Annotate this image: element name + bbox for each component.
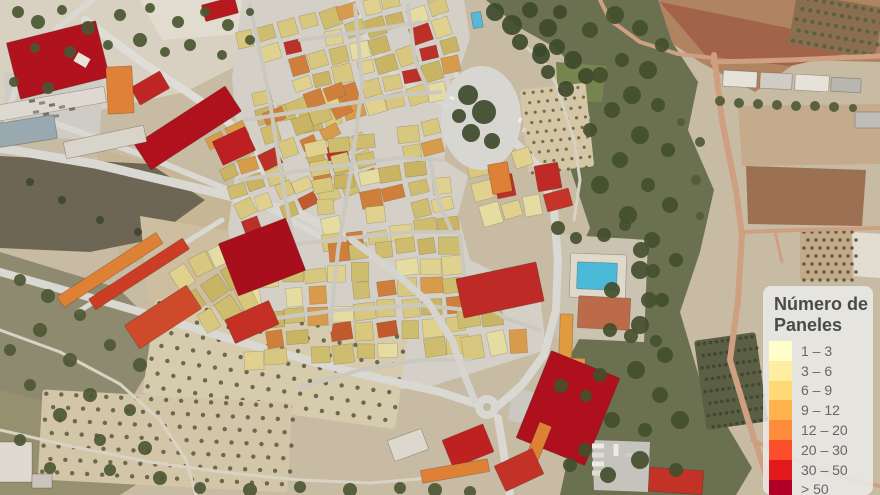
legend-label: 30 – 50 (801, 462, 848, 478)
legend-label: 1 – 3 (801, 343, 832, 359)
legend-item: 30 – 50 (769, 460, 873, 480)
legend-item: 3 – 6 (769, 361, 873, 381)
legend-label: 12 – 20 (801, 422, 848, 438)
legend-label: 3 – 6 (801, 363, 832, 379)
legend-item: 6 – 9 (769, 381, 873, 401)
legend-swatch (769, 381, 792, 401)
legend-label: > 50 (801, 481, 829, 495)
satellite-map (0, 0, 880, 495)
legend-label: 9 – 12 (801, 402, 840, 418)
legend-item: 9 – 12 (769, 400, 873, 420)
legend-swatch (769, 440, 792, 460)
legend-swatch (769, 361, 792, 381)
legend-item: 12 – 20 (769, 420, 873, 440)
legend-item: 20 – 30 (769, 440, 873, 460)
legend-label: 20 – 30 (801, 442, 848, 458)
map-screenshot: Número de Paneles 1 – 33 – 66 – 99 – 121… (0, 0, 880, 495)
legend-item: 1 – 3 (769, 341, 873, 361)
legend-swatch (769, 480, 792, 495)
legend-item: > 50 (769, 480, 873, 495)
legend-panel: Número de Paneles 1 – 33 – 66 – 99 – 121… (763, 286, 873, 495)
legend-items: 1 – 33 – 66 – 99 – 1212 – 2020 – 3030 – … (769, 341, 873, 495)
legend-swatch (769, 400, 792, 420)
legend-swatch (769, 420, 792, 440)
legend-swatch (769, 341, 792, 361)
legend-swatch (769, 460, 792, 480)
legend-label: 6 – 9 (801, 382, 832, 398)
legend-title: Número de Paneles (774, 294, 870, 336)
